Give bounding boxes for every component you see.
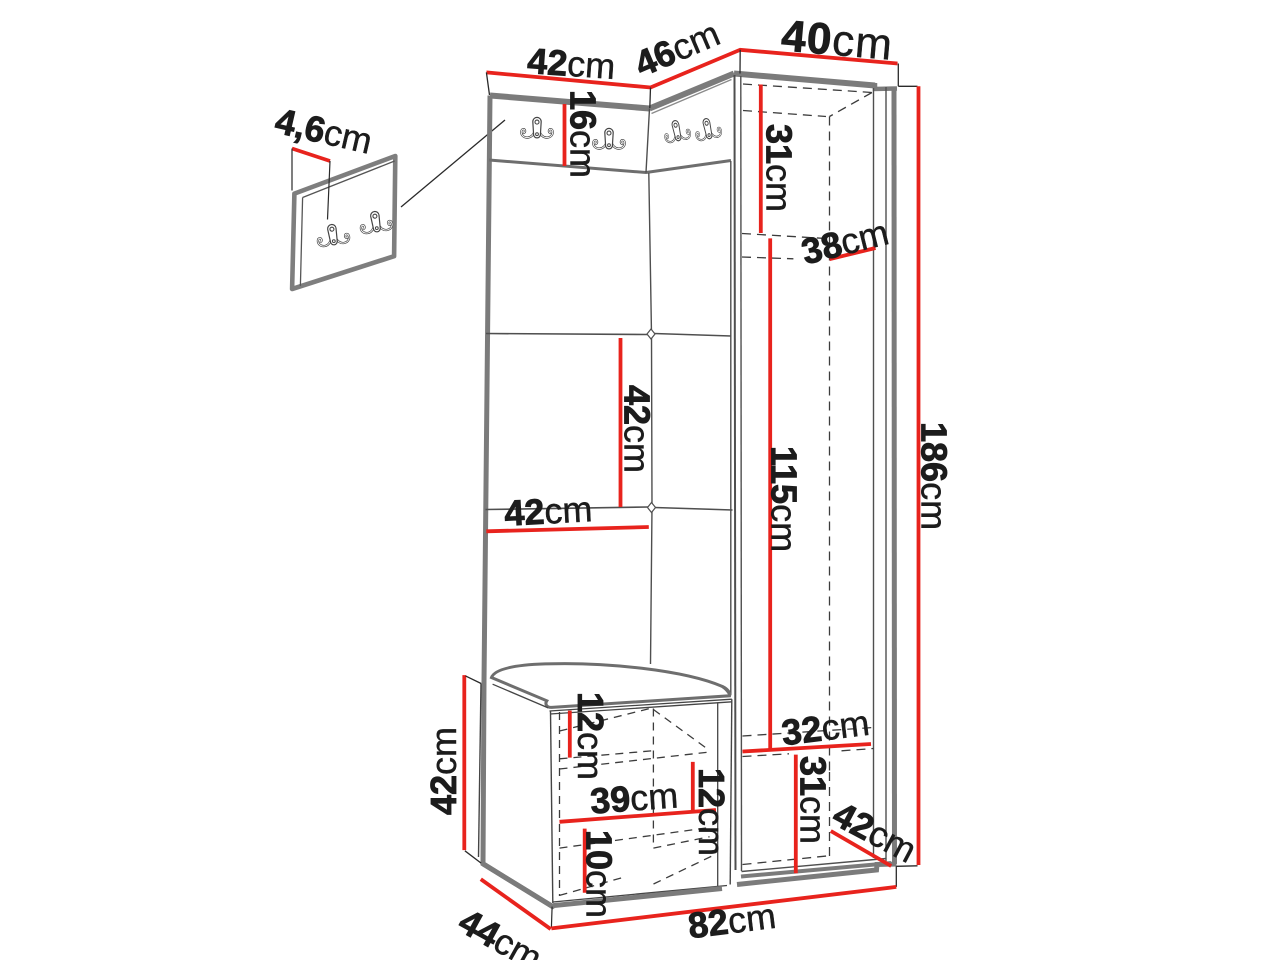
svg-text:31cm: 31cm [793, 756, 834, 844]
svg-text:42cm: 42cm [617, 385, 658, 473]
svg-text:42cm: 42cm [423, 727, 464, 815]
svg-text:186cm: 186cm [914, 422, 955, 530]
svg-text:42cm: 42cm [503, 488, 593, 534]
svg-text:31cm: 31cm [759, 124, 800, 212]
svg-text:16cm: 16cm [563, 90, 604, 178]
svg-text:12cm: 12cm [570, 692, 611, 780]
svg-text:115cm: 115cm [764, 446, 805, 552]
svg-text:40cm: 40cm [780, 11, 895, 70]
svg-text:12cm: 12cm [691, 768, 732, 856]
svg-text:10cm: 10cm [579, 830, 620, 918]
svg-text:42cm: 42cm [526, 40, 617, 87]
svg-text:39cm: 39cm [589, 775, 680, 822]
